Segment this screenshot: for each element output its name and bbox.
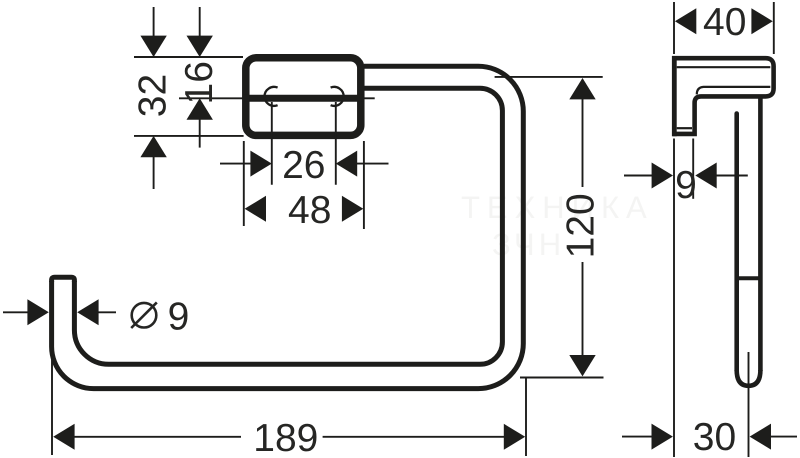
svg-text:189: 189 — [253, 417, 318, 458]
svg-text:16: 16 — [178, 61, 221, 104]
svg-text:9: 9 — [168, 295, 190, 338]
svg-text:ТЕХНИКА: ТЕХНИКА — [461, 190, 654, 225]
svg-text:120: 120 — [560, 193, 603, 258]
svg-text:32: 32 — [132, 74, 175, 117]
svg-text:40: 40 — [703, 1, 746, 44]
svg-text:26: 26 — [282, 144, 325, 187]
svg-text:9: 9 — [675, 164, 697, 207]
svg-text:48: 48 — [288, 189, 331, 232]
svg-text:30: 30 — [693, 416, 736, 458]
